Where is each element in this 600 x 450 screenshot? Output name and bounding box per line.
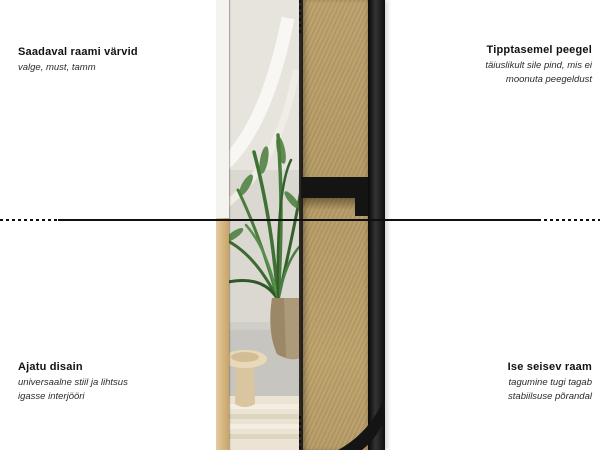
annotation-top-left: Saadaval raami värvid valge, must, tamm [18, 46, 138, 75]
infographic-canvas: Saadaval raami värvid valge, must, tamm … [0, 0, 600, 450]
mirror-front-photo [216, 0, 301, 450]
annotation-title: Saadaval raami värvid [18, 46, 138, 58]
annotation-subtitle-line: moonuta peegeldust [485, 73, 592, 87]
oak-frame-strip [216, 0, 230, 450]
divider-horizontal-solid [58, 219, 541, 221]
annotation-bottom-right: Ise seisev raam tagumine tugi tagab stab… [508, 361, 592, 404]
annotation-bottom-left: Ajatu disain universaalne stiil ja lihts… [18, 361, 128, 404]
black-frame-side-strip [368, 0, 385, 450]
divider-horizontal-dotted-left [0, 219, 58, 221]
annotation-title: Tipptasemel peegel [485, 44, 592, 56]
mdf-back-panel [301, 0, 370, 450]
annotation-subtitle-line: täiuslikult sile pind, mis ei [485, 59, 592, 73]
divider-vertical-dotted-bottom [299, 416, 301, 450]
annotation-subtitle-line: universaalne stiil ja lihtsus [18, 376, 128, 390]
divider-horizontal-dotted-right [544, 219, 600, 221]
divider-vertical-dotted-top [299, 0, 301, 34]
annotation-title: Ise seisev raam [508, 361, 592, 373]
annotation-subtitle-line: igasse interjööri [18, 390, 128, 404]
annotation-top-right: Tipptasemel peegel täiuslikult sile pind… [485, 44, 592, 87]
annotation-subtitle-line: valge, must, tamm [18, 61, 138, 75]
annotation-subtitle-line: tagumine tugi tagab [508, 376, 592, 390]
annotation-title: Ajatu disain [18, 361, 128, 373]
support-bracket [355, 198, 368, 216]
annotation-subtitle-line: stabiilsuse põrandal [508, 390, 592, 404]
stand-leg [330, 395, 385, 450]
